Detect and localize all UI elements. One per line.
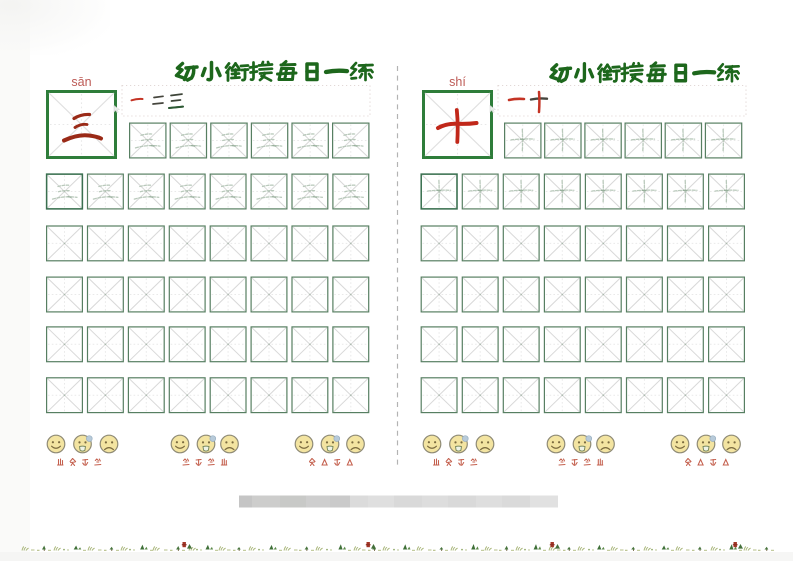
svg-text:shí: shí <box>449 75 466 89</box>
svg-text:sān: sān <box>71 75 91 89</box>
